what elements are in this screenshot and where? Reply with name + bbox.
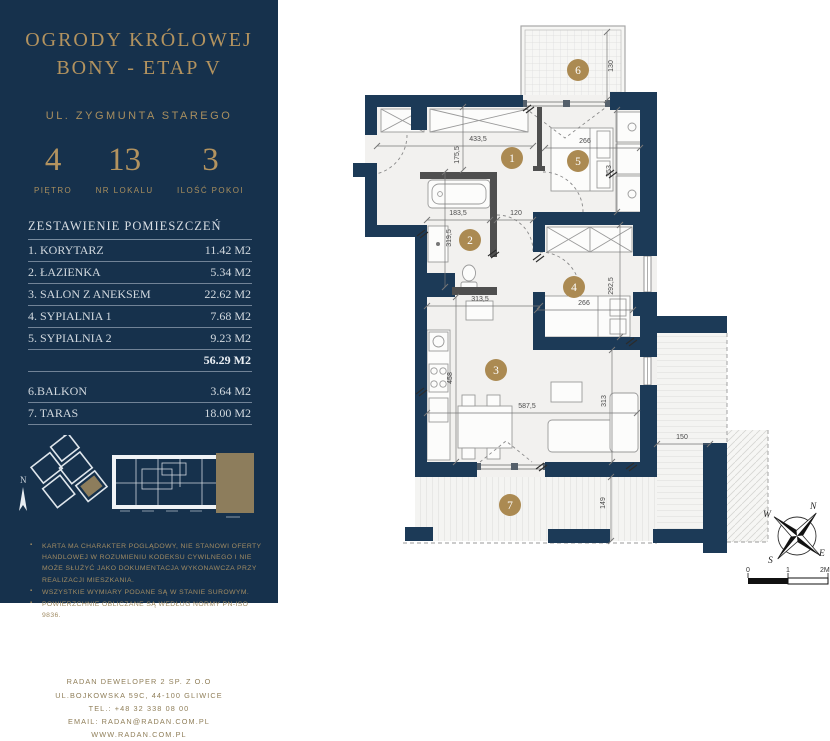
disclaimer-list: KARTA MA CHARAKTER POGLĄDOWY, NIE STANOW… bbox=[30, 541, 262, 621]
room-name: 2. ŁAZIENKA bbox=[28, 265, 101, 280]
footer-company: RADAN DEWELOPER 2 SP. Z O.O bbox=[0, 675, 278, 688]
street-address: UL. ZYGMUNTA STAREGO bbox=[0, 110, 278, 122]
room-marker-number: 7 bbox=[507, 500, 513, 512]
room-name: 5. SYPIALNIA 2 bbox=[28, 331, 112, 346]
title-line2: BONY - ETAP V bbox=[0, 54, 278, 82]
building-plan-map bbox=[114, 453, 254, 517]
dimension-label: 292,5 bbox=[608, 277, 615, 295]
dimension-label: 313,5 bbox=[471, 296, 489, 303]
stat-unit-number: 13 NR LOKALU bbox=[96, 142, 154, 195]
room-marker-number: 5 bbox=[575, 156, 581, 168]
room-name: 1. KORYTARZ bbox=[28, 243, 104, 258]
dimension-label: 319,5 bbox=[446, 229, 453, 247]
disclaimer-item: POWIERZCHNIE OBLICZANE SĄ WEDŁUG NORMY P… bbox=[30, 599, 262, 621]
dimension-label: 313 bbox=[601, 395, 608, 407]
stat-rooms-label: ILOŚĆ POKOI bbox=[177, 186, 244, 195]
dimension-label: 587,5 bbox=[518, 403, 536, 410]
room-marker-number: 4 bbox=[571, 282, 577, 294]
compass-east-label: E bbox=[818, 549, 825, 559]
total-area-value: 56.29 M2 bbox=[204, 353, 251, 368]
bedroom1-wardrobe bbox=[547, 227, 632, 252]
compass-west-label: W bbox=[763, 510, 772, 520]
site-plan-map bbox=[18, 435, 116, 519]
stat-rooms-value: 3 bbox=[177, 142, 244, 179]
table-row: 6.BALKON 3.64 M2 bbox=[28, 381, 252, 403]
total-area-row: 56.29 M2 bbox=[28, 350, 252, 372]
compass-south-label: S bbox=[768, 556, 773, 566]
stat-room-count: 3 ILOŚĆ POKOI bbox=[177, 142, 244, 195]
location-minimaps: N bbox=[12, 435, 264, 531]
bathtub bbox=[428, 180, 490, 208]
table-row: 2. ŁAZIENKA 5.34 M2 bbox=[28, 262, 252, 284]
room-name: 3. SALON Z ANEKSEM bbox=[28, 287, 151, 302]
dimension-label: 266 bbox=[579, 138, 591, 145]
title-line1: OGRODY KRÓLOWEJ bbox=[0, 26, 278, 54]
page-title: OGRODY KRÓLOWEJ BONY - ETAP V bbox=[0, 26, 278, 82]
compass-north-label: N bbox=[809, 502, 817, 512]
stat-unit-value: 13 bbox=[96, 142, 154, 179]
room-area: 7.68 M2 bbox=[210, 309, 251, 324]
room-marker-number: 3 bbox=[493, 365, 499, 377]
room-area: 5.34 M2 bbox=[210, 265, 251, 280]
table-row: 5. SYPIALNIA 2 9.23 M2 bbox=[28, 328, 252, 350]
room-area: 9.23 M2 bbox=[210, 331, 251, 346]
coffee-table bbox=[551, 382, 582, 402]
scale-bar: 0 1 2M bbox=[746, 567, 830, 584]
room-name: 7. TARAS bbox=[28, 406, 78, 421]
room-list-table: ZESTAWIENIE POMIESZCZEŃ 1. KORYTARZ 11.4… bbox=[28, 219, 252, 425]
dimension-label: 149 bbox=[600, 497, 607, 509]
kitchen-counter bbox=[427, 330, 450, 460]
floor-plan-drawing: 433,5175,5183,5319,5120313,5458587,53132… bbox=[348, 16, 830, 600]
room-name: 6.BALKON bbox=[28, 384, 87, 399]
logo-leaf-icon bbox=[152, 627, 170, 639]
footer-address: UL.BOJKOWSKA 59C, 44-100 GLIWICE bbox=[0, 689, 278, 702]
table-row: 1. KORYTARZ 11.42 M2 bbox=[28, 240, 252, 262]
kitchen-cabinet bbox=[466, 301, 493, 320]
logo-text: RADAN bbox=[83, 634, 189, 664]
room-area: 18.00 M2 bbox=[204, 406, 251, 421]
building-plan-highlight bbox=[216, 453, 254, 513]
dimension-label: 175,5 bbox=[454, 146, 461, 164]
developer-logo: RADAN® bbox=[0, 634, 278, 665]
stat-floor: 4 PIĘTRO bbox=[34, 142, 72, 195]
scale-tick-2: 2M bbox=[820, 567, 830, 574]
table-row: 7. TARAS 18.00 M2 bbox=[28, 403, 252, 425]
dimension-label: 120 bbox=[510, 210, 522, 217]
table-row: 3. SALON Z ANEKSEM 22.62 M2 bbox=[28, 284, 252, 306]
dimension-label: 183,5 bbox=[449, 210, 467, 217]
developer-contact-block: RADAN DEWELOPER 2 SP. Z O.O UL.BOJKOWSKA… bbox=[0, 675, 278, 741]
scale-tick-1: 1 bbox=[786, 567, 790, 574]
dimension-label: 458 bbox=[447, 372, 454, 384]
dimension-label: 130 bbox=[608, 60, 615, 72]
apartment-stats: 4 PIĘTRO 13 NR LOKALU 3 ILOŚĆ POKOI bbox=[0, 142, 278, 195]
dimension-label: 266 bbox=[578, 300, 590, 307]
logo-registered-mark: ® bbox=[189, 634, 196, 644]
room-list-heading: ZESTAWIENIE POMIESZCZEŃ bbox=[28, 219, 252, 240]
scale-tick-0: 0 bbox=[746, 567, 750, 574]
room-area: 11.42 M2 bbox=[205, 243, 251, 258]
room-marker-number: 1 bbox=[509, 153, 515, 165]
hallway-wardrobe bbox=[381, 109, 528, 132]
room-marker-number: 6 bbox=[575, 65, 581, 77]
sidebar-panel: OGRODY KRÓLOWEJ BONY - ETAP V UL. ZYGMUN… bbox=[0, 0, 278, 603]
dimension-label: 150 bbox=[676, 434, 688, 441]
room-area: 3.64 M2 bbox=[210, 384, 251, 399]
disclaimer-item: WSZYSTKIE WYMIARY PODANE SĄ W STANIE SUR… bbox=[30, 587, 262, 598]
room-marker-number: 2 bbox=[467, 235, 473, 247]
footer-email: EMAIL: RADAN@RADAN.COM.PL bbox=[0, 715, 278, 728]
disclaimer-item: KARTA MA CHARAKTER POGLĄDOWY, NIE STANOW… bbox=[30, 541, 262, 586]
dimension-label: 433,5 bbox=[469, 136, 487, 143]
table-row: 4. SYPIALNIA 1 7.68 M2 bbox=[28, 306, 252, 328]
room-area: 22.62 M2 bbox=[204, 287, 251, 302]
minimap-north-label: N bbox=[20, 475, 27, 485]
north-arrow-icon bbox=[19, 487, 27, 511]
room-name: 4. SYPIALNIA 1 bbox=[28, 309, 112, 324]
footer-phone: TEL.: +48 32 338 08 00 bbox=[0, 702, 278, 715]
stat-floor-label: PIĘTRO bbox=[34, 186, 72, 195]
footer-website: WWW.RADAN.COM.PL bbox=[0, 728, 278, 741]
stat-floor-value: 4 bbox=[34, 142, 72, 179]
stat-unit-label: NR LOKALU bbox=[96, 186, 154, 195]
